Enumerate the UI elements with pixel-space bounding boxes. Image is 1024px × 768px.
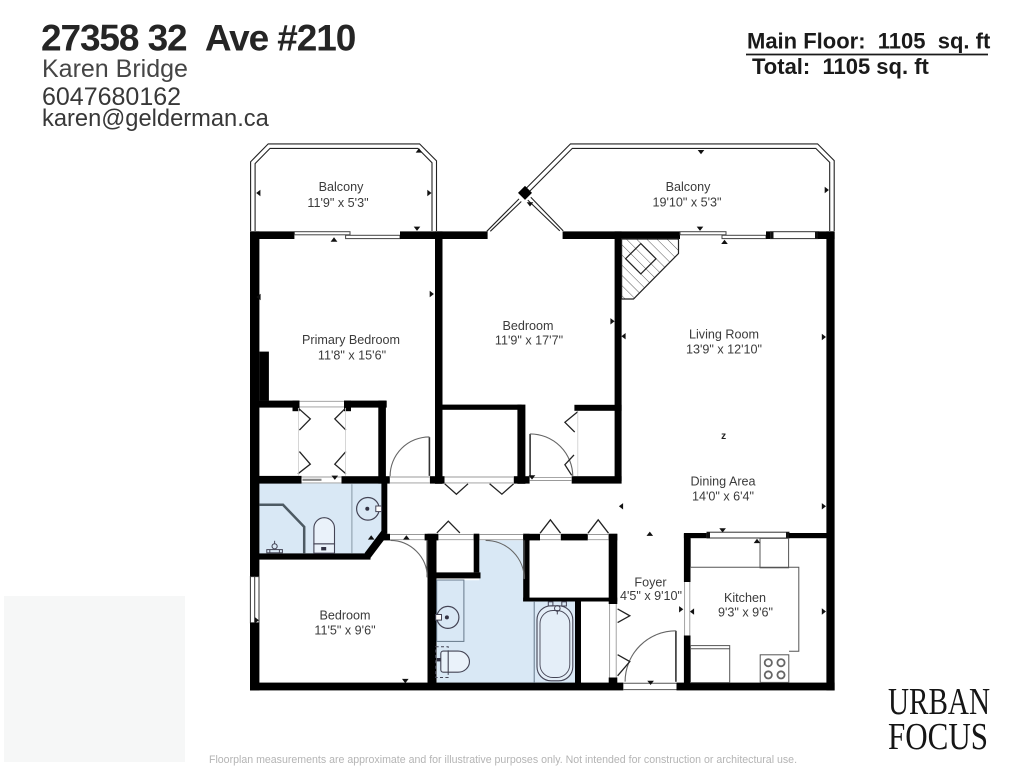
svg-text:11'9" x 17'7": 11'9" x 17'7"	[495, 334, 563, 348]
svg-text:14'0" x 6'4": 14'0" x 6'4"	[692, 490, 754, 504]
svg-text:Foyer: Foyer	[634, 576, 666, 590]
svg-text:4'5" x 9'10": 4'5" x 9'10"	[620, 589, 682, 603]
svg-text:Karen Bridge: Karen Bridge	[42, 55, 188, 83]
svg-text:Bedroom: Bedroom	[319, 609, 370, 623]
svg-text:Total: 1105 sq. ft: Total: 1105 sq. ft	[752, 54, 930, 79]
svg-text:Living Room: Living Room	[689, 328, 759, 342]
svg-text:FOCUS: FOCUS	[888, 716, 988, 758]
svg-text:11'5" x 9'6": 11'5" x 9'6"	[314, 624, 375, 638]
svg-text:Primary Bedroom: Primary Bedroom	[302, 333, 400, 347]
svg-text:Kitchen: Kitchen	[724, 591, 766, 605]
svg-text:Dining Area: Dining Area	[690, 475, 755, 489]
svg-text:Balcony: Balcony	[666, 180, 712, 194]
svg-text:13'9" x 12'10": 13'9" x 12'10"	[686, 343, 762, 357]
svg-text:27358 32 Ave #210: 27358 32 Ave #210	[41, 18, 356, 59]
svg-text:11'8" x 15'6": 11'8" x 15'6"	[318, 349, 386, 363]
svg-text:9'3" x 9'6": 9'3" x 9'6"	[718, 606, 773, 620]
svg-text:Bedroom: Bedroom	[502, 319, 553, 333]
svg-text:Balcony: Balcony	[319, 180, 365, 194]
svg-text:Floorplan measurements are app: Floorplan measurements are approximate a…	[209, 754, 797, 766]
svg-text:11'9" x 5'3": 11'9" x 5'3"	[307, 196, 368, 210]
svg-text:Main Floor: 1105 sq. ft: Main Floor: 1105 sq. ft	[747, 29, 991, 54]
svg-text:karen@gelderman.ca: karen@gelderman.ca	[42, 106, 270, 132]
svg-text:19'10" x 5'3": 19'10" x 5'3"	[652, 196, 721, 210]
svg-text:z: z	[721, 431, 726, 442]
